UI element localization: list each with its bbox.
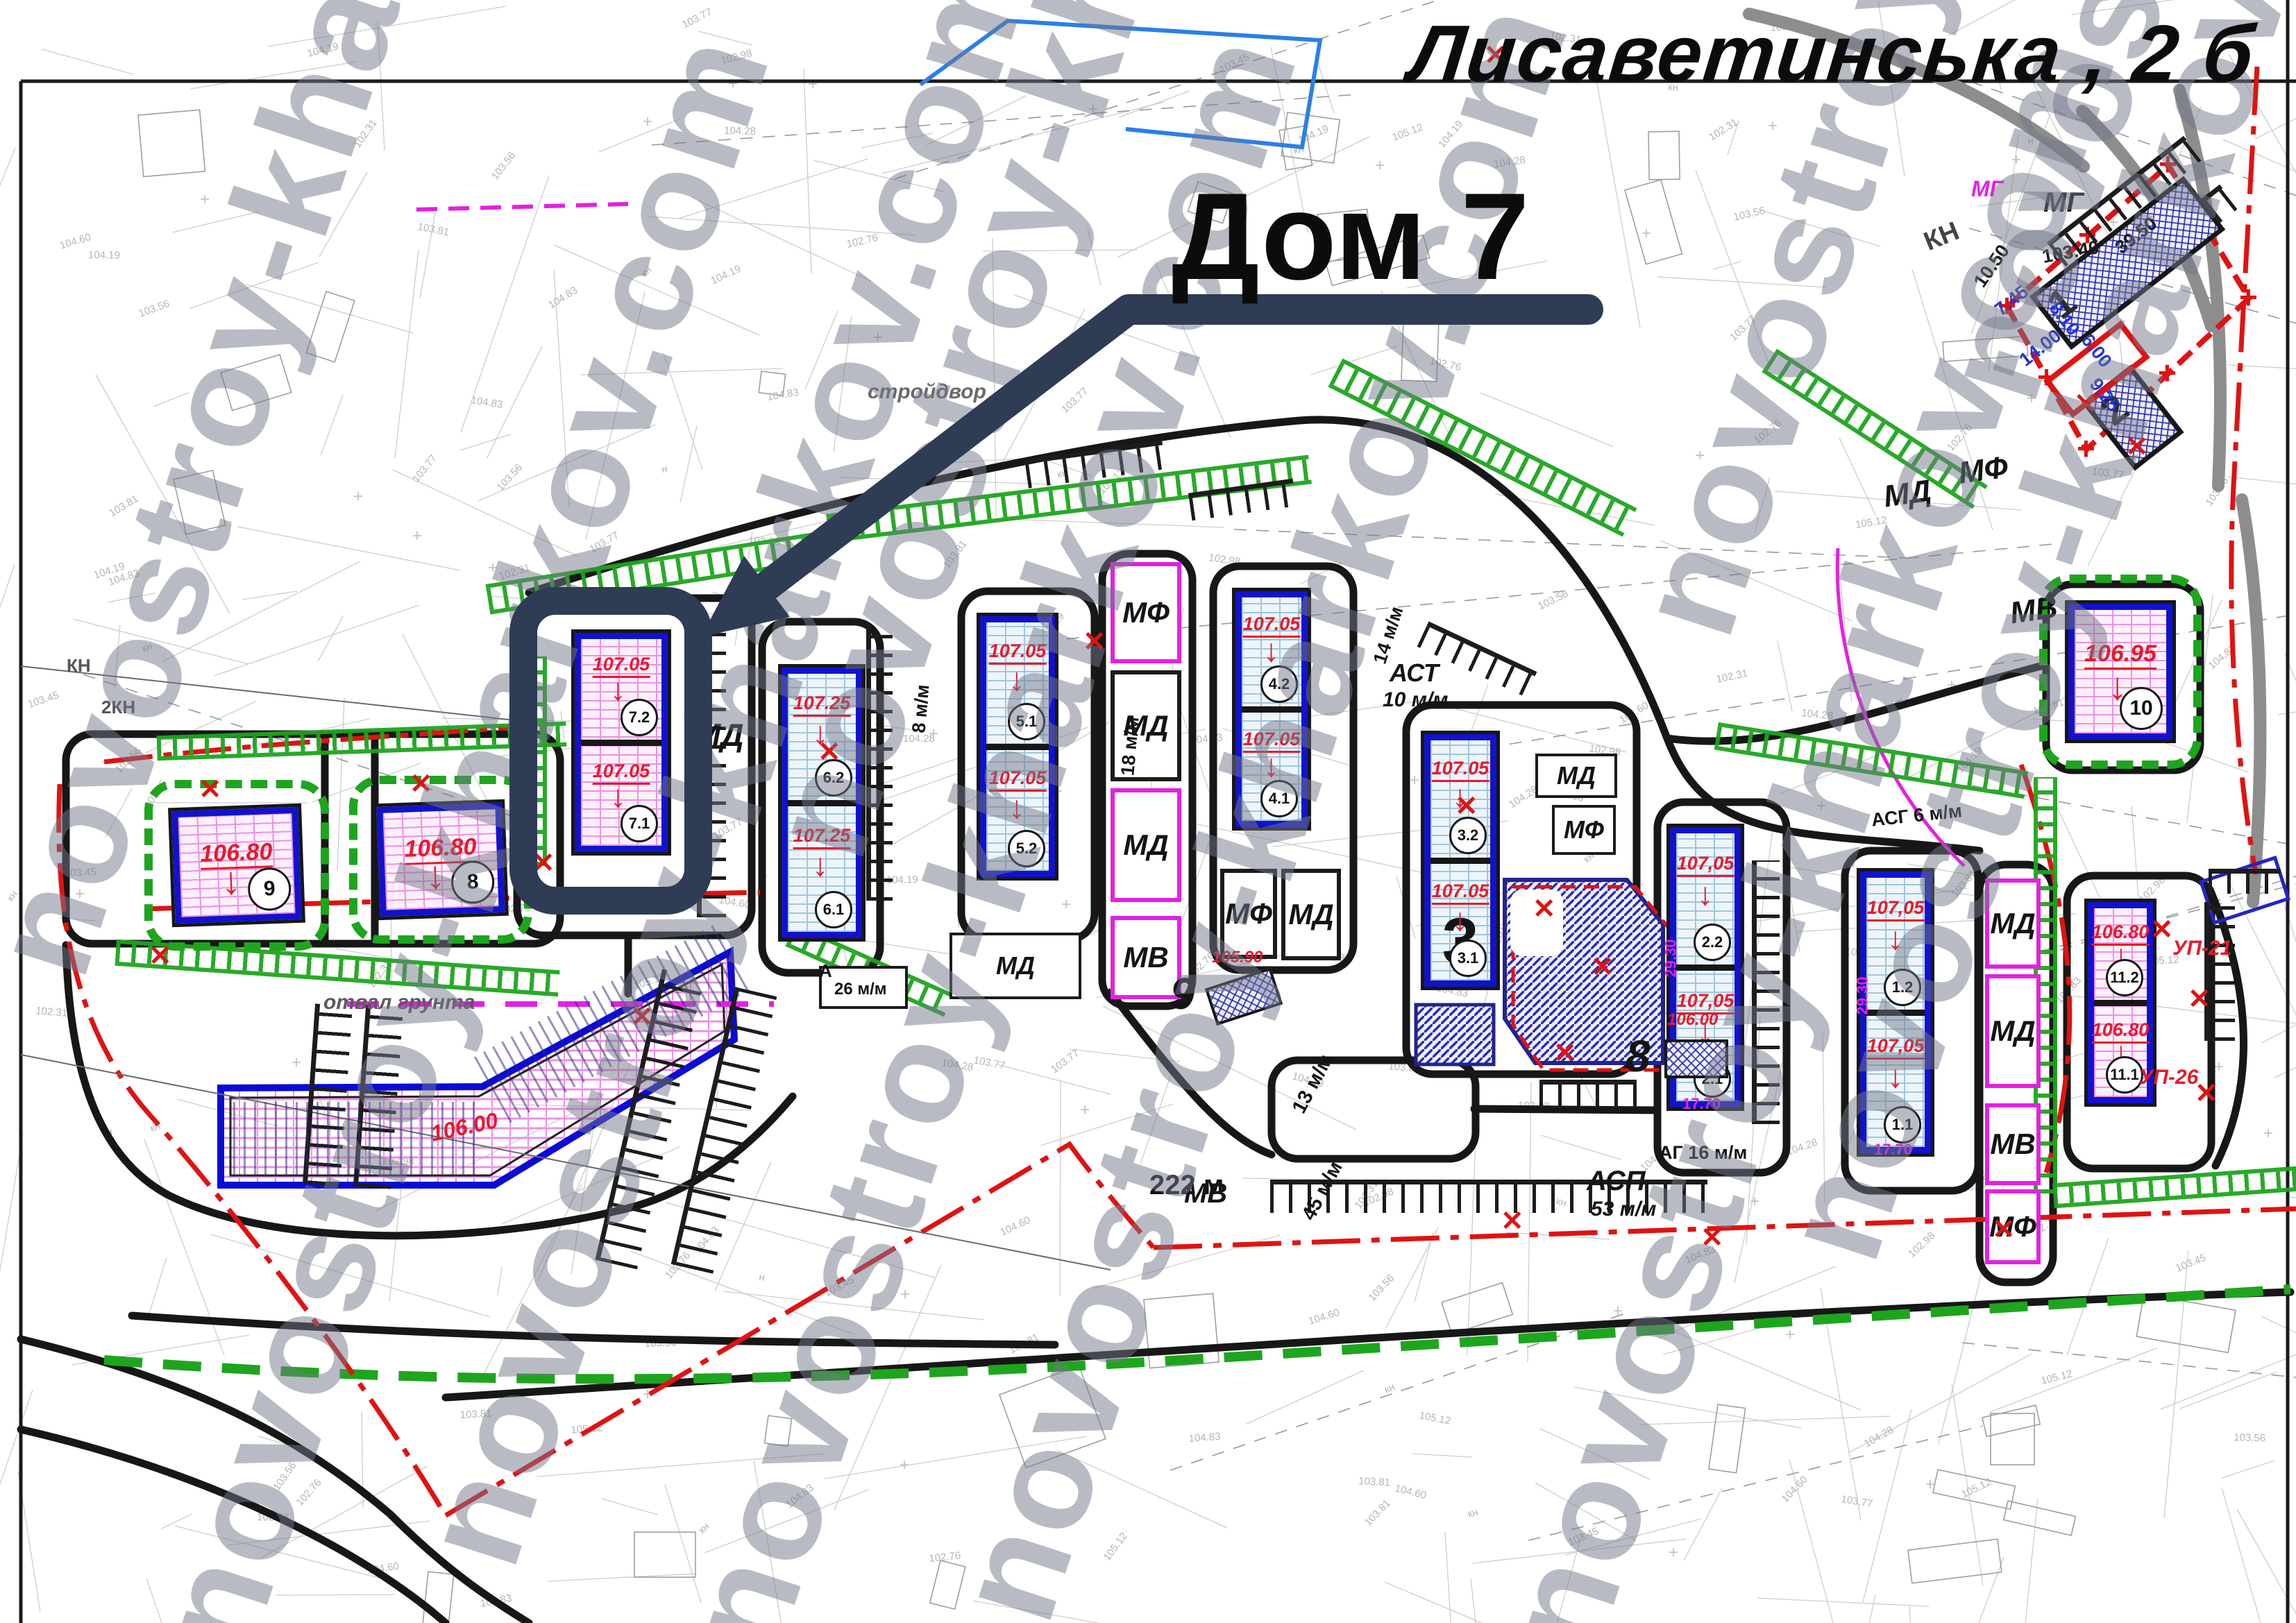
house-7-callout: Дом 7 [1172,165,1530,307]
house-7-arrow [0,0,2296,1623]
plan-title: Лисаветинська , 2 б [1373,7,2292,100]
site-plan: 103.56103.56103.81104.60103.81104.60102.… [0,0,2296,1623]
